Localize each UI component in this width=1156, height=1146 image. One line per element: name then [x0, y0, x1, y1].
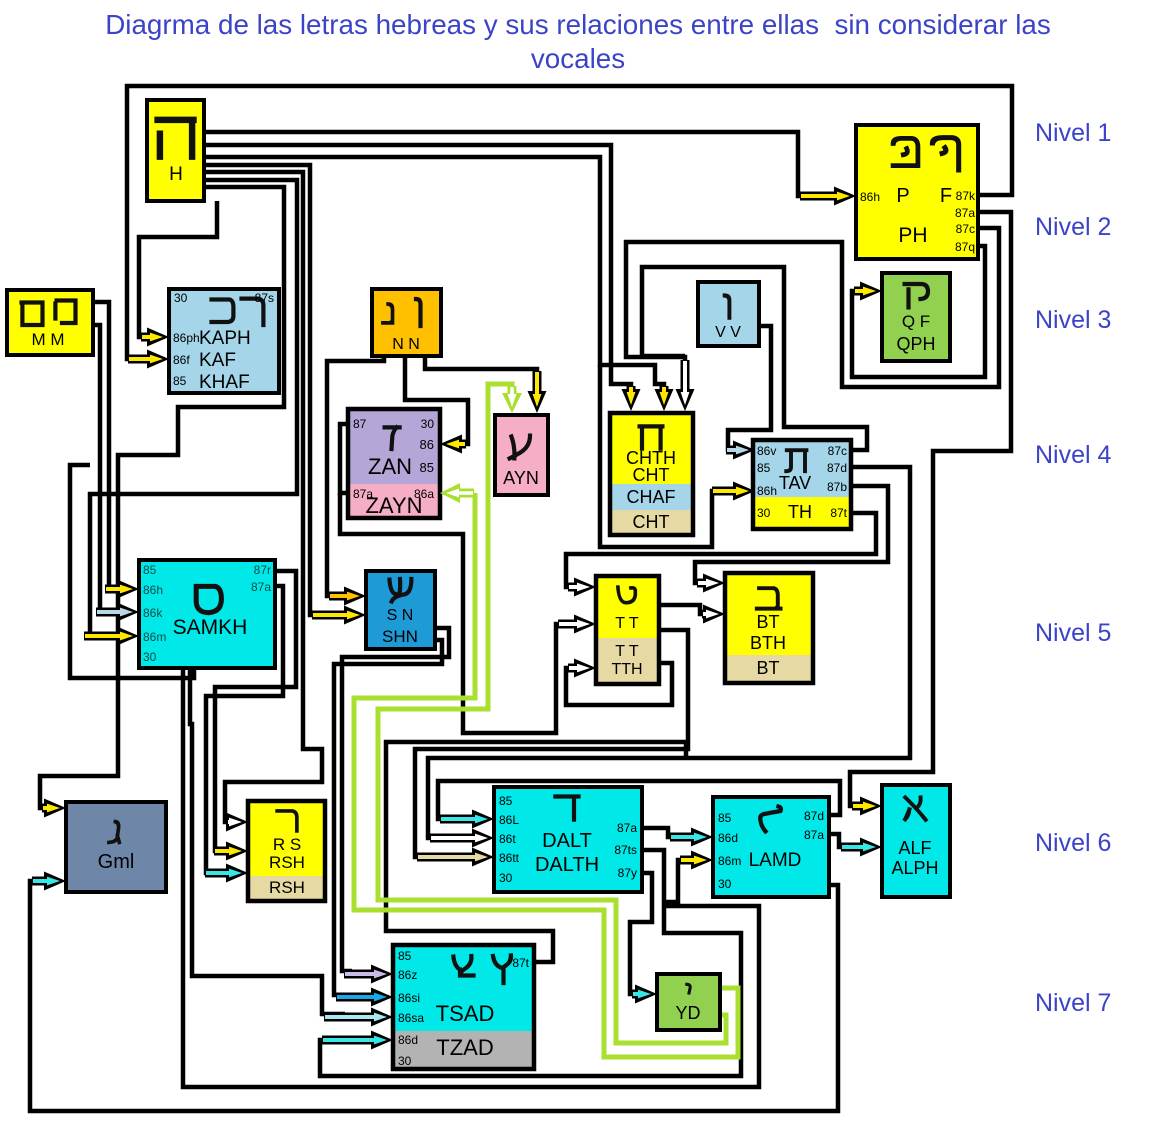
svg-text:86z: 86z: [398, 968, 417, 982]
svg-text:86L: 86L: [499, 813, 519, 827]
svg-text:N N: N N: [392, 336, 420, 353]
svg-text:TH: TH: [788, 502, 812, 522]
svg-text:87y: 87y: [618, 866, 637, 880]
svg-text:ZAN: ZAN: [368, 454, 412, 479]
svg-text:RSH: RSH: [269, 853, 305, 872]
svg-text:YD: YD: [675, 1003, 700, 1023]
svg-text:87c: 87c: [956, 222, 975, 236]
svg-text:Nivel 6: Nivel 6: [1035, 829, 1111, 857]
svg-text:87a: 87a: [955, 206, 975, 220]
svg-text:87t: 87t: [512, 956, 529, 970]
svg-text:87: 87: [353, 417, 367, 431]
svg-text:87a: 87a: [617, 821, 637, 835]
svg-text:86m: 86m: [143, 630, 166, 644]
svg-text:AYN: AYN: [503, 468, 539, 488]
svg-text:87a: 87a: [804, 828, 824, 842]
svg-text:87q: 87q: [955, 240, 975, 254]
svg-text:KHAF: KHAF: [199, 372, 250, 393]
svg-text:BT: BT: [756, 658, 779, 678]
svg-text:DALTH: DALTH: [535, 854, 599, 876]
svg-text:30: 30: [143, 650, 157, 664]
svg-text:87t: 87t: [830, 506, 847, 520]
svg-text:86: 86: [420, 437, 434, 452]
svg-text:CHT: CHT: [633, 465, 670, 485]
svg-text:87ts: 87ts: [614, 843, 637, 857]
svg-text:P: P: [896, 185, 909, 207]
svg-text:87k: 87k: [956, 189, 976, 203]
svg-text:Nivel 1: Nivel 1: [1035, 119, 1111, 147]
svg-text:86ph: 86ph: [173, 331, 200, 345]
svg-text:V V: V V: [715, 324, 741, 341]
svg-text:30: 30: [499, 871, 513, 885]
svg-text:M M: M M: [31, 330, 64, 349]
svg-text:87c: 87c: [828, 444, 847, 458]
svg-text:85: 85: [143, 563, 157, 577]
svg-text:30: 30: [421, 417, 435, 431]
svg-text:87s: 87s: [255, 291, 274, 305]
svg-text:BTH: BTH: [750, 633, 786, 653]
svg-text:CHT: CHT: [633, 512, 670, 532]
svg-text:H: H: [169, 164, 183, 185]
svg-text:86m: 86m: [718, 854, 741, 868]
svg-text:DALT: DALT: [542, 830, 592, 852]
svg-text:30: 30: [174, 291, 188, 305]
svg-text:S N: S N: [387, 607, 414, 624]
svg-text:87d: 87d: [804, 809, 824, 823]
svg-text:30: 30: [398, 1054, 412, 1068]
svg-text:vocales: vocales: [531, 43, 625, 74]
svg-text:PH: PH: [898, 224, 927, 247]
svg-text:T T: T T: [615, 615, 639, 632]
svg-text:85: 85: [398, 949, 412, 963]
svg-text:Nivel 4: Nivel 4: [1035, 441, 1112, 469]
svg-text:TTH: TTH: [611, 661, 642, 678]
svg-text:TZAD: TZAD: [436, 1035, 493, 1060]
svg-text:KAF: KAF: [199, 350, 236, 371]
svg-text:85: 85: [499, 794, 513, 808]
svg-text:R S: R S: [273, 835, 301, 854]
svg-text:TSAD: TSAD: [436, 1001, 495, 1026]
svg-text:QPH: QPH: [896, 334, 935, 354]
svg-text:TAV: TAV: [779, 473, 811, 493]
svg-text:ALPH: ALPH: [891, 858, 938, 878]
svg-text:86tt: 86tt: [499, 851, 520, 865]
svg-text:F: F: [940, 185, 952, 207]
svg-text:LAMD: LAMD: [749, 850, 802, 871]
svg-text:30: 30: [718, 877, 732, 891]
svg-text:SHN: SHN: [382, 627, 418, 646]
svg-text:86h: 86h: [757, 484, 777, 498]
svg-text:ZAYN: ZAYN: [365, 493, 422, 518]
svg-text:Diagrma de las letras hebreas: Diagrma de las letras hebreas y sus rela…: [105, 9, 1051, 40]
svg-text:87a: 87a: [251, 580, 271, 594]
svg-text:85: 85: [420, 460, 434, 475]
svg-text:KAPH: KAPH: [199, 328, 251, 349]
svg-text:86t: 86t: [499, 832, 516, 846]
svg-text:86si: 86si: [398, 991, 420, 1005]
svg-text:85: 85: [718, 811, 732, 825]
svg-text:Nivel 3: Nivel 3: [1035, 306, 1111, 334]
svg-text:86d: 86d: [718, 831, 738, 845]
svg-text:86k: 86k: [143, 606, 163, 620]
svg-text:85: 85: [173, 374, 187, 388]
svg-text:87r: 87r: [254, 563, 271, 577]
svg-text:CHAF: CHAF: [627, 487, 676, 507]
svg-text:Nivel 7: Nivel 7: [1035, 989, 1111, 1017]
svg-text:Q F: Q F: [902, 312, 930, 331]
svg-text:86f: 86f: [173, 353, 190, 367]
svg-text:87b: 87b: [827, 480, 847, 494]
svg-text:30: 30: [757, 506, 771, 520]
svg-text:86h: 86h: [860, 190, 880, 204]
svg-text:86d: 86d: [398, 1033, 418, 1047]
svg-text:Nivel 5: Nivel 5: [1035, 619, 1111, 647]
svg-text:ALF: ALF: [898, 838, 931, 858]
svg-text:87d: 87d: [827, 461, 847, 475]
svg-text:T T: T T: [615, 643, 639, 660]
svg-text:86v: 86v: [757, 444, 776, 458]
svg-text:RSH: RSH: [269, 878, 305, 897]
svg-text:BT: BT: [756, 612, 779, 632]
svg-text:86h: 86h: [143, 583, 163, 597]
svg-text:86sa: 86sa: [398, 1011, 424, 1025]
svg-text:SAMKH: SAMKH: [173, 616, 248, 639]
svg-text:Nivel 2: Nivel 2: [1035, 213, 1111, 241]
svg-text:85: 85: [757, 461, 771, 475]
svg-text:Gml: Gml: [98, 851, 135, 873]
